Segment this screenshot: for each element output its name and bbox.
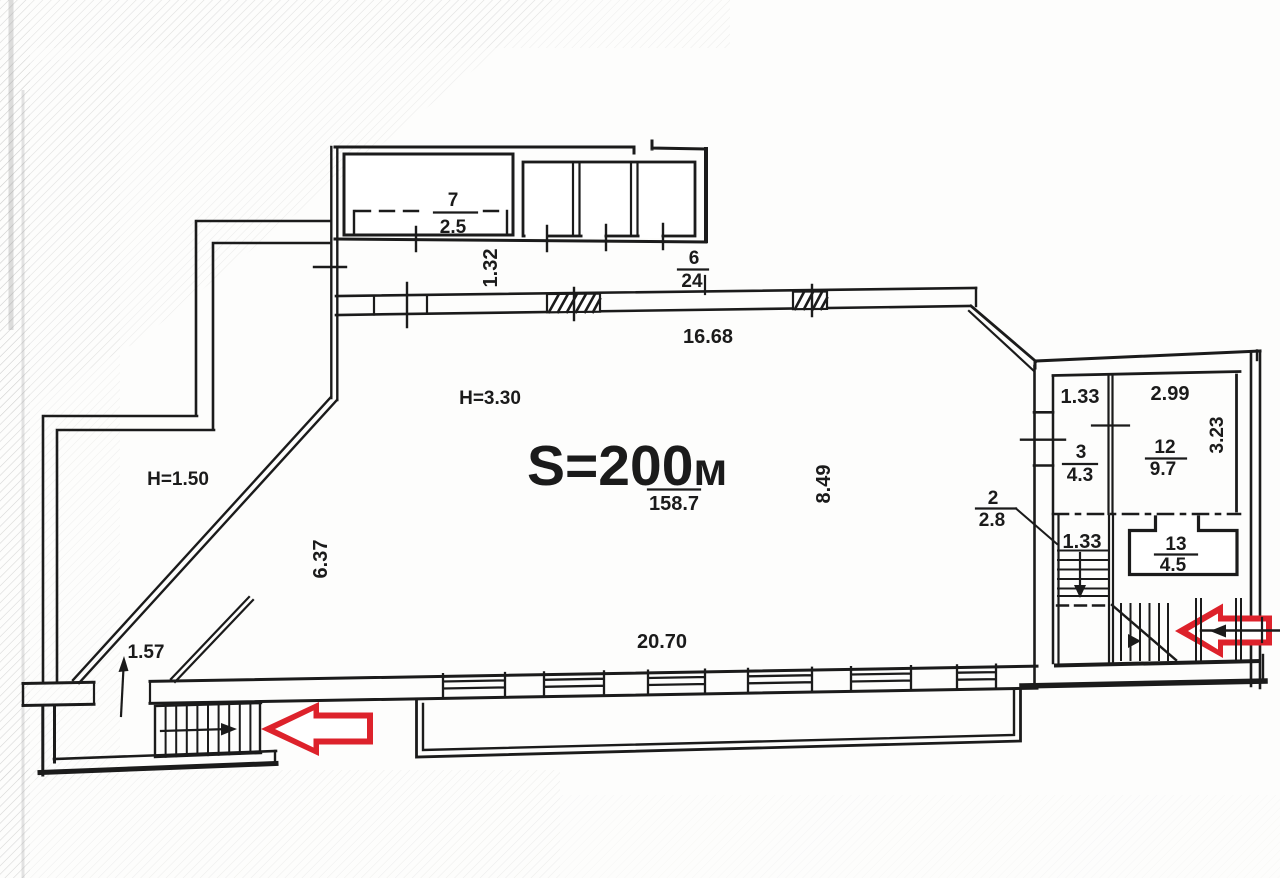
svg-text:4.3: 4.3	[1067, 465, 1093, 486]
svg-text:20.70: 20.70	[637, 631, 687, 653]
svg-text:1.32: 1.32	[480, 249, 502, 288]
svg-text:3.23: 3.23	[1207, 417, 1228, 454]
svg-text:6: 6	[689, 248, 700, 269]
svg-text:7: 7	[448, 190, 459, 211]
svg-text:6.37: 6.37	[310, 540, 332, 579]
svg-text:2.8: 2.8	[979, 510, 1005, 531]
svg-text:3: 3	[1076, 442, 1087, 463]
svg-text:8.49: 8.49	[813, 465, 835, 504]
svg-text:4.5: 4.5	[1160, 555, 1187, 576]
svg-text:24: 24	[681, 271, 703, 292]
svg-text:2: 2	[988, 488, 999, 509]
svg-text:2.5: 2.5	[440, 217, 467, 238]
svg-text:H=1.50: H=1.50	[147, 469, 209, 490]
svg-text:1.33: 1.33	[1061, 386, 1100, 408]
svg-text:1.57: 1.57	[128, 642, 165, 663]
svg-text:2.99: 2.99	[1151, 383, 1190, 405]
svg-text:13: 13	[1165, 534, 1186, 555]
svg-text:12: 12	[1154, 437, 1175, 458]
svg-text:158.7: 158.7	[649, 493, 699, 515]
svg-text:16.68: 16.68	[683, 326, 733, 348]
svg-text:9.7: 9.7	[1150, 459, 1176, 480]
svg-text:H=3.30: H=3.30	[459, 388, 521, 409]
